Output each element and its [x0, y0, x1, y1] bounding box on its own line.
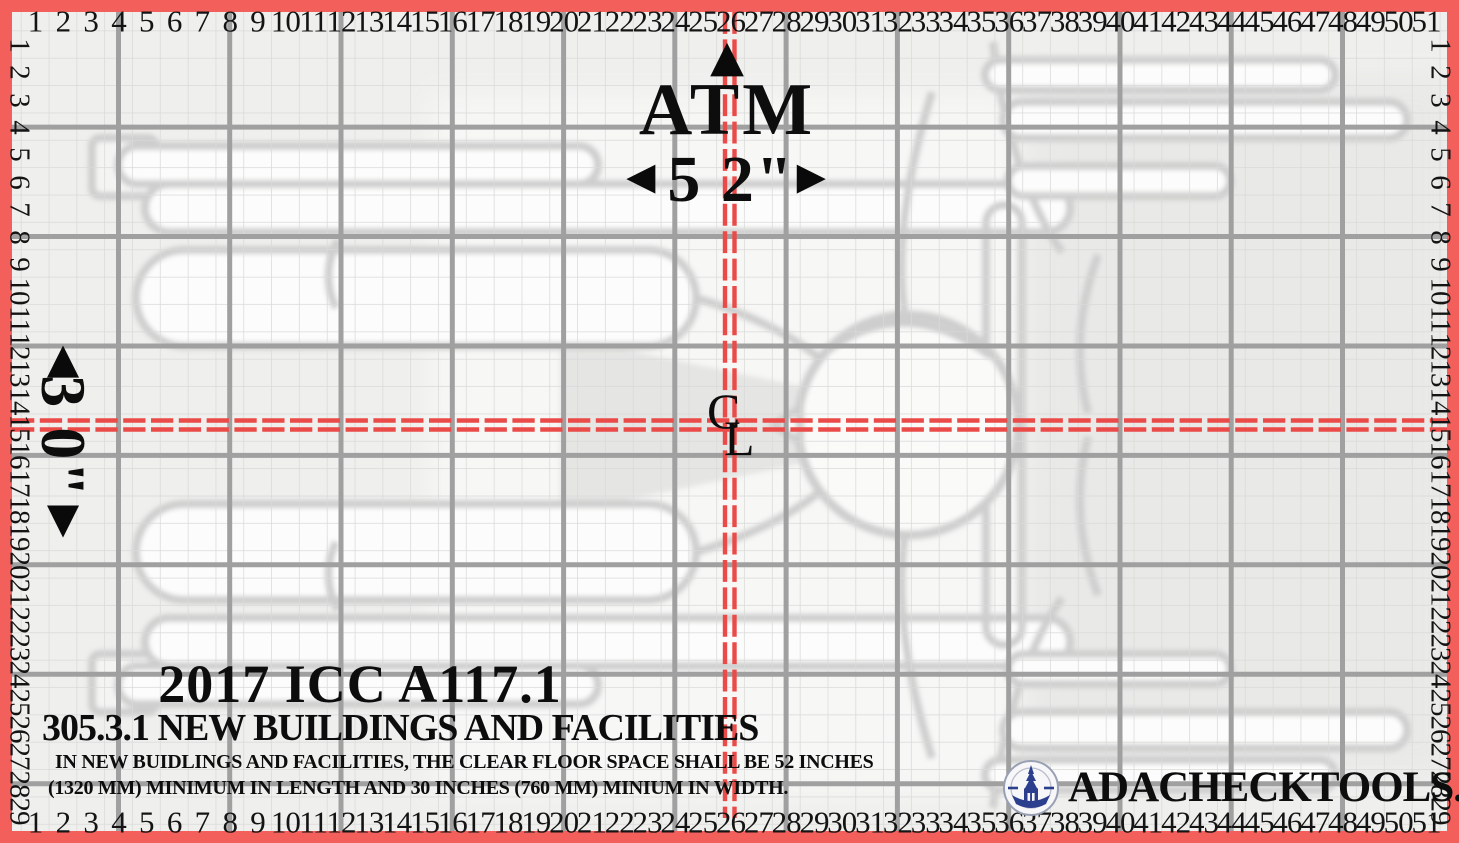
ruler-number: 23: [633, 6, 662, 37]
ruler-number: 9: [5, 257, 34, 271]
ruler-number: 8: [222, 6, 237, 37]
ruler-number: 24: [660, 6, 689, 37]
ruler-number: 19: [521, 6, 550, 37]
ruler-number: 17: [466, 6, 495, 37]
ruler-number: 13: [354, 6, 383, 37]
ruler-number: 44: [1217, 6, 1246, 37]
ruler-number: 31: [855, 6, 884, 37]
ruler-number: 33: [911, 6, 940, 37]
ruler-number: 19: [5, 524, 34, 551]
ruler-number: 11: [5, 306, 34, 332]
ruler-number: 45: [1245, 6, 1274, 37]
ruler-number: 6: [5, 175, 34, 189]
ruler-number: 6: [167, 807, 182, 838]
ruler-number: 5: [139, 807, 154, 838]
ruler-number: 24: [1426, 661, 1455, 688]
ruler-number: 5: [1426, 148, 1455, 162]
ruler-number: 15: [410, 807, 439, 838]
width-value: 5 2": [667, 143, 794, 216]
ruler-number: 19: [521, 807, 550, 838]
ruler-number: 21: [1426, 579, 1455, 606]
ruler-number: 38: [1050, 6, 1079, 37]
ruler-number: 13: [1426, 360, 1455, 387]
ruler-number: 37: [1022, 6, 1051, 37]
ruler-number: 41: [1133, 6, 1162, 37]
ruler-number: 32: [883, 807, 912, 838]
adachecktools-logo-icon: [1000, 757, 1062, 819]
ruler-number: 8: [222, 807, 237, 838]
ruler-number: 17: [466, 807, 495, 838]
ruler-number: 7: [5, 202, 34, 216]
ruler-number: 5: [139, 6, 154, 37]
ruler-number: 19: [1426, 524, 1455, 551]
ruler-number: 2: [56, 6, 71, 37]
ruler-number: 21: [577, 807, 606, 838]
ruler-number: 28: [772, 6, 801, 37]
ruler-number: 4: [111, 6, 126, 37]
ruler-number: 21: [5, 579, 34, 606]
ruler-number: 23: [633, 807, 662, 838]
ruler-number: 28: [5, 770, 34, 797]
height-dimension-30: 3 0": [31, 375, 95, 499]
ruler-number: 36: [994, 6, 1023, 37]
ruler-number: 35: [966, 807, 995, 838]
ruler-number: 22: [605, 6, 634, 37]
ruler-number: 20: [1426, 551, 1455, 578]
ruler-number: 20: [5, 551, 34, 578]
ruler-number: 6: [167, 6, 182, 37]
ruler-number: 18: [493, 6, 522, 37]
ruler-number: 22: [5, 606, 34, 633]
ruler-number: 18: [493, 807, 522, 838]
ruler-number: 10: [1426, 278, 1455, 305]
ruler-number: 34: [939, 6, 968, 37]
ruler-number: 8: [5, 230, 34, 244]
ruler-number: 10: [271, 6, 300, 37]
ruler-number: 40: [1105, 6, 1134, 37]
ruler-number: 1: [28, 6, 43, 37]
ruler-number: 16: [438, 6, 467, 37]
ruler-number: 50: [1384, 6, 1413, 37]
ada-clear-floor-space-diagram: 1234567891011121314151617181920212223242…: [0, 0, 1459, 843]
ruler-number: 29: [5, 798, 34, 825]
ruler-number: 3: [1426, 93, 1455, 107]
width-dimension-52: ◀5 2"▶: [626, 147, 828, 213]
ruler-number: 25: [5, 688, 34, 715]
ruler-number: 26: [1426, 716, 1455, 743]
ruler-number: 31: [855, 807, 884, 838]
arrow-right-icon: ▶: [797, 154, 828, 198]
ruler-number: 46: [1272, 6, 1301, 37]
ruler-number: 25: [1426, 688, 1455, 715]
ruler-number: 35: [966, 6, 995, 37]
ruler-number: 12: [1426, 332, 1455, 359]
ruler-number: 3: [83, 6, 98, 37]
ruler-number: 29: [799, 807, 828, 838]
ruler-number: 22: [1426, 606, 1455, 633]
ruler-number: 18: [1426, 497, 1455, 524]
ruler-number: 34: [939, 807, 968, 838]
ruler-number: 23: [1426, 633, 1455, 660]
ruler-number: 16: [1426, 442, 1455, 469]
ruler-number: 9: [250, 807, 265, 838]
ruler-number: 1: [5, 38, 34, 52]
ruler-number: 26: [716, 807, 745, 838]
ruler-number: 48: [1328, 6, 1357, 37]
arrow-down-icon: ▼: [47, 494, 79, 543]
ruler-number: 51: [1412, 6, 1441, 37]
ruler-number: 6: [1426, 175, 1455, 189]
ruler-number: 14: [1426, 387, 1455, 414]
ruler-number: 12: [5, 332, 34, 359]
ruler-number: 11: [1426, 306, 1455, 332]
ruler-number: 43: [1189, 6, 1218, 37]
ruler-number: 14: [382, 6, 411, 37]
ruler-number: 2: [1426, 66, 1455, 80]
ruler-number: 3: [5, 93, 34, 107]
ruler-number: 3: [83, 807, 98, 838]
ruler-number: 7: [1426, 202, 1455, 216]
ruler-number: 27: [744, 6, 773, 37]
ruler-number: 27: [744, 807, 773, 838]
ruler-number: 33: [911, 807, 940, 838]
ruler-number: 4: [5, 120, 34, 134]
ruler-number: 16: [438, 807, 467, 838]
section-title: 305.3.1 NEW BUILDINGS AND FACILITIES: [42, 706, 758, 750]
ruler-number: 2: [5, 66, 34, 80]
ruler-number: 11: [299, 6, 327, 37]
atm-label: ATM: [626, 73, 828, 147]
ruler-number: 15: [1426, 415, 1455, 442]
ruler-number: 11: [299, 807, 327, 838]
ruler-number: 13: [354, 807, 383, 838]
ruler-number: 2: [56, 807, 71, 838]
ruler-number: 7: [195, 807, 210, 838]
ruler-number: 18: [5, 497, 34, 524]
ruler-number: 10: [271, 807, 300, 838]
ruler-number: 1: [1426, 38, 1455, 52]
ruler-number: 24: [660, 807, 689, 838]
website-label: ADACHECKTOOLS.COM: [1068, 763, 1459, 812]
ruler-number: 23: [5, 633, 34, 660]
ruler-number: 20: [549, 6, 578, 37]
ruler-number: 7: [195, 6, 210, 37]
centerline-symbol-l: L: [724, 413, 755, 463]
ruler-number: 39: [1078, 6, 1107, 37]
ruler-number: 47: [1300, 6, 1329, 37]
ruler-number: 5: [5, 148, 34, 162]
ruler-number: 32: [883, 6, 912, 37]
ruler-number: 4: [111, 807, 126, 838]
ruler-number: 30: [827, 807, 856, 838]
ruler-number: 21: [577, 6, 606, 37]
ruler-number: 25: [688, 807, 717, 838]
ruler-number: 15: [410, 6, 439, 37]
ruler-number: 4: [1426, 120, 1455, 134]
ruler-number: 12: [327, 807, 356, 838]
ruler-number: 9: [1426, 257, 1455, 271]
ruler-number: 14: [382, 807, 411, 838]
ruler-number: 8: [1426, 230, 1455, 244]
ruler-number: 17: [1426, 469, 1455, 496]
top-dimension-group: ▲ ATM ◀5 2"▶: [626, 38, 828, 213]
ruler-number: 26: [5, 716, 34, 743]
ruler-number: 29: [799, 6, 828, 37]
ruler-number: 27: [5, 743, 34, 770]
ruler-number: 10: [5, 278, 34, 305]
arrow-left-icon: ◀: [626, 154, 657, 198]
ruler-number: 42: [1161, 6, 1190, 37]
ruler-number: 22: [605, 807, 634, 838]
ruler-number: 30: [827, 6, 856, 37]
ruler-number: 28: [772, 807, 801, 838]
ruler-number: 12: [327, 6, 356, 37]
ruler-number: 49: [1356, 6, 1385, 37]
requirement-text-line2: (1320 MM) MINIMUM IN LENGTH AND 30 INCHE…: [48, 777, 788, 800]
ruler-number: 20: [549, 807, 578, 838]
ruler-number: 24: [5, 661, 34, 688]
ruler-number: 9: [250, 6, 265, 37]
requirement-text-line1: IN NEW BUIDLINGS AND FACILITIES, THE CLE…: [55, 751, 874, 774]
